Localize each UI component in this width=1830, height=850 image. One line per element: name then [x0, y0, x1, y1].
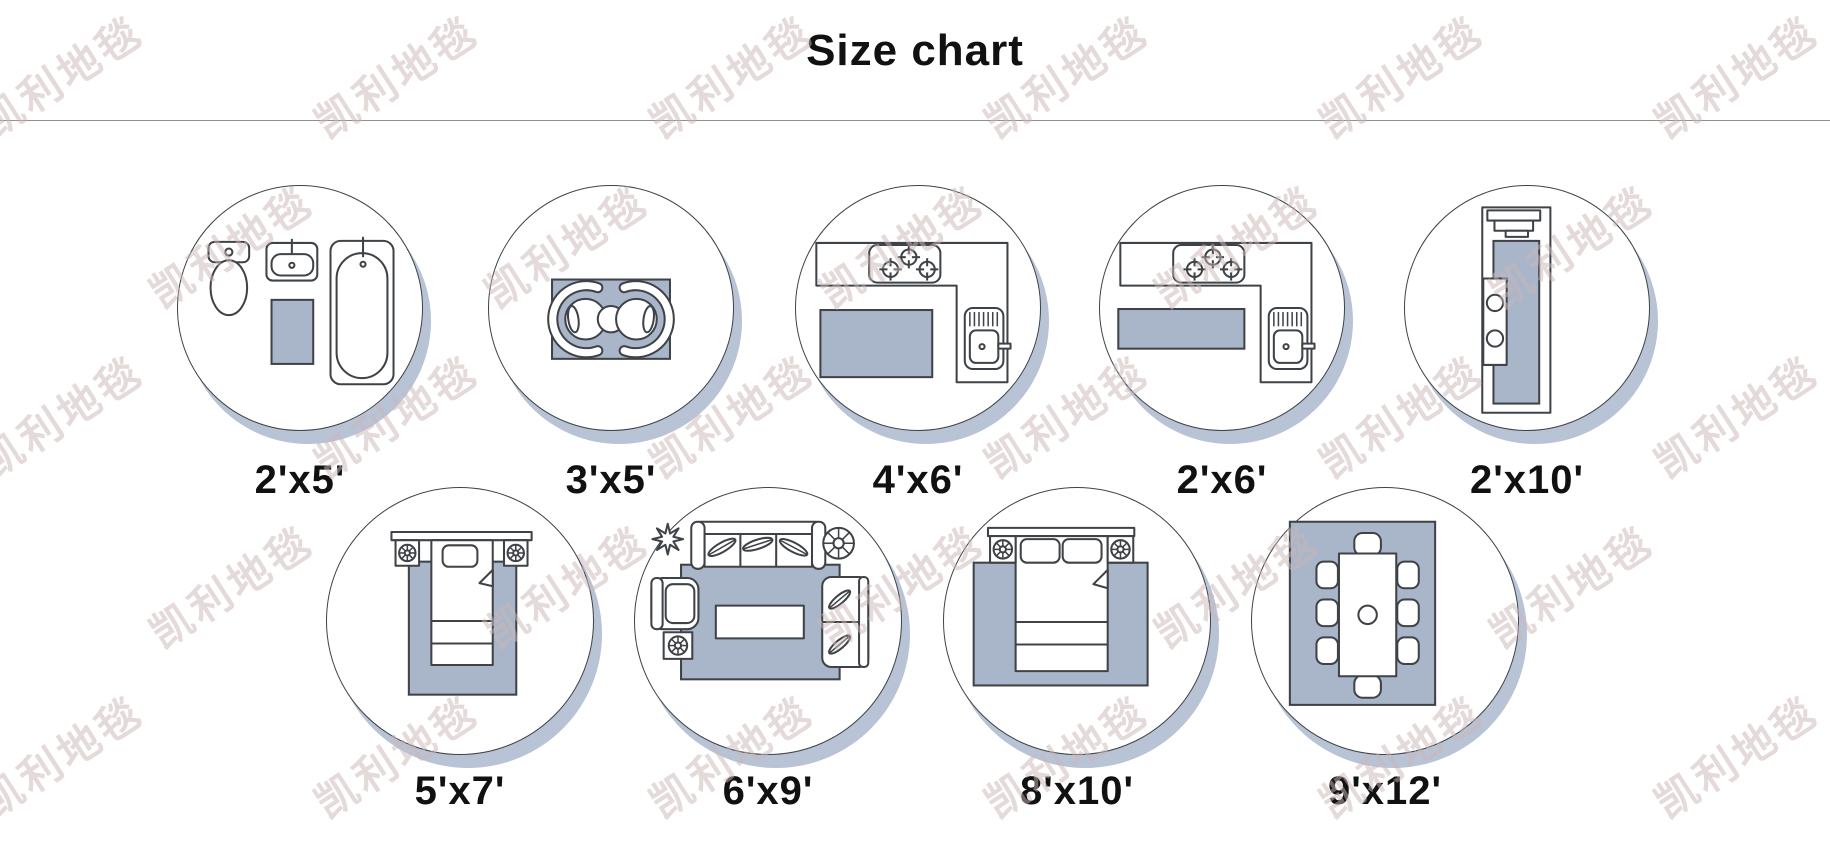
sitting-area-illustration	[489, 186, 733, 430]
bed-icon	[431, 540, 492, 665]
loveseat-icon	[822, 577, 868, 667]
size-label-6x9: 6'x9'	[723, 769, 814, 814]
watermark-text: 凯利地毯	[1641, 679, 1829, 830]
divider-line	[0, 120, 1830, 121]
coffee-table-icon	[716, 606, 804, 639]
circle-dining-room	[1251, 487, 1519, 755]
stove-icon	[1173, 245, 1244, 283]
kitchen-runner-illustration	[1100, 186, 1344, 430]
nightstand-icon	[1108, 536, 1134, 563]
circle-hallway	[1404, 185, 1650, 431]
nightstand-icon	[990, 536, 1016, 563]
kitchen-sink-icon	[965, 308, 1011, 369]
circle-sitting-area	[488, 185, 734, 431]
watermark-text: 凯利地毯	[0, 339, 154, 490]
size-option-2x10: 2'x10'	[1405, 185, 1649, 503]
size-label-9x12: 9'x12'	[1328, 769, 1442, 814]
size-label-5x7: 5'x7'	[415, 769, 506, 814]
armchair-icon	[651, 578, 698, 629]
headboard-icon	[988, 528, 1134, 536]
size-option-4x6: 4'x6'	[796, 185, 1040, 503]
circle-bedroom-twin	[326, 487, 594, 755]
nightstand-icon	[504, 540, 528, 566]
rug	[272, 300, 314, 364]
size-chart-image: Size chart	[0, 0, 1830, 850]
watermark-text: 凯利地毯	[136, 509, 324, 660]
bathtub-icon	[331, 237, 394, 384]
headboard-icon	[391, 532, 531, 540]
dining-room-illustration	[1252, 488, 1518, 754]
size-option-5x7: 5'x7'	[327, 487, 593, 814]
round-table-icon	[823, 528, 854, 559]
circle-kitchen	[795, 185, 1041, 431]
page-title: Size chart	[0, 26, 1830, 76]
size-option-8x10: 8'x10'	[944, 487, 1210, 814]
living-room-illustration	[635, 488, 901, 754]
size-label-8x10: 8'x10'	[1020, 769, 1134, 814]
sink-icon	[266, 239, 317, 281]
dining-table-icon	[1339, 553, 1396, 676]
size-option-3x5: 3'x5'	[489, 185, 733, 503]
size-option-6x9: 6'x9'	[635, 487, 901, 814]
kitchen-illustration	[796, 186, 1040, 430]
watermark-text: 凯利地毯	[1641, 339, 1829, 490]
kitchen-sink-icon	[1269, 308, 1315, 369]
rug	[820, 310, 932, 377]
bathroom-illustration	[178, 186, 422, 430]
bed-icon	[1016, 536, 1108, 671]
watermark-text: 凯利地毯	[0, 679, 154, 830]
circle-bathroom	[177, 185, 423, 431]
hallway-illustration	[1405, 186, 1649, 430]
stove-icon	[869, 245, 940, 283]
circle-bedroom-double	[943, 487, 1211, 755]
nightstand-icon	[396, 540, 420, 566]
size-option-2x5: 2'x5'	[178, 185, 422, 503]
bedroom-twin-illustration	[327, 488, 593, 754]
circle-kitchen-runner	[1099, 185, 1345, 431]
plant-icon	[652, 524, 683, 555]
cabinet-icon	[1483, 279, 1506, 365]
bedroom-double-illustration	[944, 488, 1210, 754]
size-option-9x12: 9'x12'	[1252, 487, 1518, 814]
rug	[1118, 309, 1244, 349]
sofa-icon	[691, 522, 825, 569]
toilet-icon	[209, 242, 250, 315]
side-table-icon	[664, 632, 693, 659]
circle-living-room	[634, 487, 902, 755]
size-option-2x6: 2'x6'	[1100, 185, 1344, 503]
